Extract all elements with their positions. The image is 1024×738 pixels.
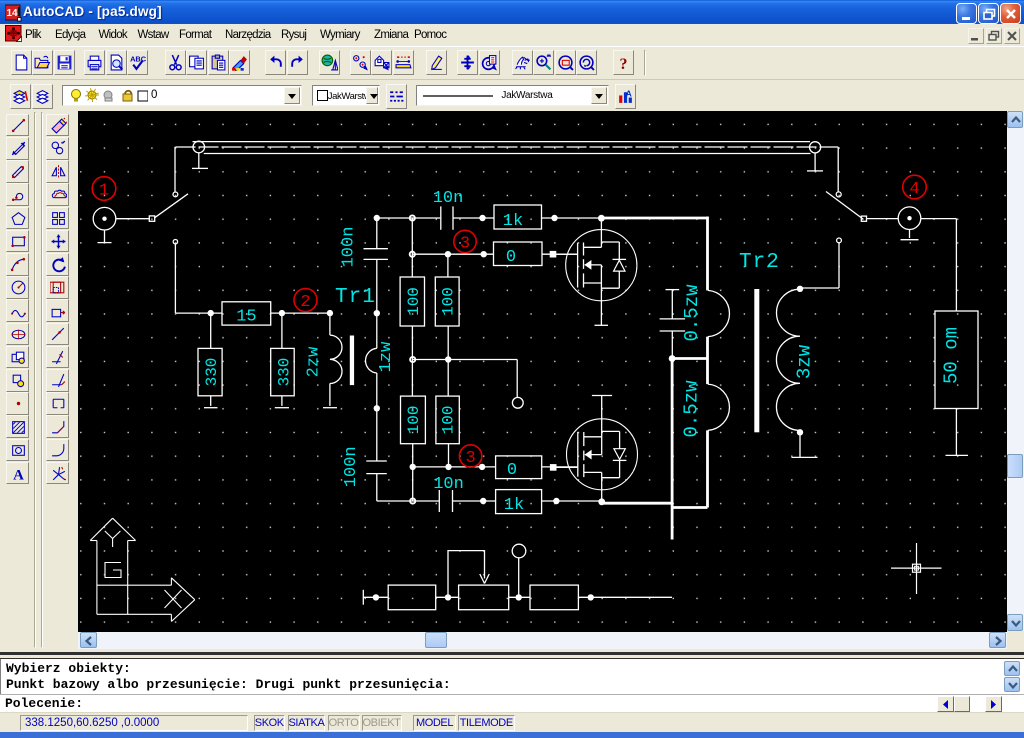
svg-text:3: 3 [460,235,470,254]
svg-text:0.5zw: 0.5zw [681,380,703,438]
svg-text:100: 100 [405,287,423,316]
svg-text:100: 100 [405,405,423,434]
svg-text:14: 14 [6,8,18,19]
svg-text:Tr2: Tr2 [739,251,780,274]
svg-text:100: 100 [440,287,458,316]
svg-text:3: 3 [465,449,475,468]
svg-text:50 om: 50 om [941,327,963,384]
svg-text:?: ? [619,56,627,71]
svg-text:ABC: ABC [130,54,146,63]
svg-text:1k: 1k [503,212,523,231]
svg-text:10n: 10n [433,189,464,208]
svg-text:2zw: 2zw [305,346,324,377]
svg-text:330: 330 [275,358,293,387]
svg-text:0.5zw: 0.5zw [681,284,703,342]
svg-text:4: 4 [909,180,919,199]
svg-text:100n: 100n [342,446,361,487]
svg-text:1k: 1k [504,496,524,515]
svg-text:100n: 100n [340,227,359,268]
svg-text:1: 1 [99,182,109,201]
svg-text:3zw: 3zw [794,344,816,379]
svg-text:A: A [626,89,632,99]
svg-text:2: 2 [300,293,310,312]
svg-text:10n: 10n [433,475,464,494]
svg-text:330: 330 [203,358,221,387]
svg-text:1zw: 1zw [377,341,396,372]
svg-text:100: 100 [440,405,458,434]
svg-text:Tr1: Tr1 [335,286,376,309]
svg-text:0: 0 [506,248,516,267]
svg-text:0: 0 [507,461,517,480]
svg-text:A: A [13,467,24,482]
svg-text:15: 15 [236,308,256,327]
